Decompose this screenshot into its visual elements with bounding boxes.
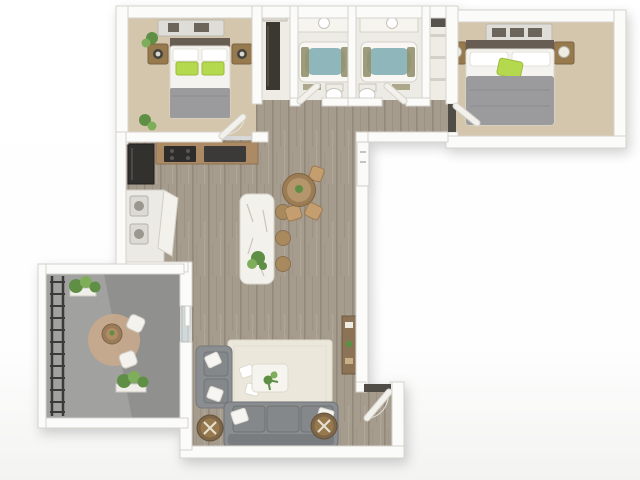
wall-segment	[252, 6, 262, 104]
tub-tray	[363, 47, 371, 77]
kitchen-island	[240, 194, 274, 284]
dresser-drawer	[510, 28, 524, 37]
pillow	[202, 49, 227, 61]
wall-segment	[614, 10, 626, 148]
gray-throw	[170, 88, 230, 118]
wall-segment	[366, 132, 448, 142]
wall-segment	[348, 98, 382, 106]
coffee-table	[252, 364, 288, 392]
wall-segment	[422, 6, 430, 106]
wall-segment	[448, 10, 626, 22]
range-stove	[164, 146, 196, 162]
wall-segment	[392, 382, 404, 456]
bathtub-water	[305, 48, 345, 75]
shelf	[430, 78, 448, 81]
wall-segment	[252, 132, 268, 142]
wall-segment	[116, 6, 450, 18]
floorplan-stage	[0, 0, 640, 480]
utility-panel	[357, 142, 369, 186]
balcony-sliding-door	[182, 306, 190, 342]
drum-side-table	[197, 415, 223, 441]
console-decor	[345, 322, 353, 328]
bathtub-water	[367, 48, 411, 75]
laundry-closet	[126, 190, 178, 262]
wall-segment	[180, 446, 404, 458]
wall-segment	[116, 6, 128, 144]
wall-segment	[290, 6, 298, 106]
wall-segment	[446, 6, 458, 104]
drum-side-table	[311, 413, 337, 439]
tub-tray	[301, 47, 309, 77]
wall-segment	[406, 98, 430, 106]
counter-appliance	[204, 146, 246, 162]
media-console	[342, 316, 356, 374]
wall-segment	[116, 132, 222, 142]
island-top	[240, 194, 274, 284]
dresser-decor	[168, 23, 179, 32]
sink-icon	[319, 18, 330, 29]
accent-pillow	[202, 62, 224, 75]
lamp-icon	[559, 47, 570, 58]
dresser-drawer	[528, 28, 542, 37]
floorplan-render	[0, 0, 640, 480]
queen-bed	[170, 38, 230, 118]
balcony-parapet	[38, 264, 46, 428]
dresser-decor	[194, 23, 209, 32]
dresser-drawer	[492, 28, 506, 37]
bistro-table	[102, 324, 122, 344]
gray-duvet	[466, 76, 554, 125]
console-decor	[345, 358, 353, 364]
shelf	[430, 56, 448, 59]
wall-segment	[446, 136, 626, 148]
sink-icon	[387, 18, 398, 29]
shelf	[430, 34, 448, 37]
console-plant	[346, 341, 353, 348]
balcony-parapet	[38, 418, 188, 428]
accent-pillow	[176, 62, 198, 75]
table-centerpiece	[295, 185, 303, 193]
wall-segment	[116, 132, 126, 272]
queen-bed	[466, 40, 554, 125]
accent-chair	[196, 346, 232, 408]
balcony-parapet	[38, 264, 184, 274]
tub-tray	[407, 47, 415, 77]
dresser	[158, 20, 224, 36]
wall-segment	[180, 342, 192, 450]
bar-stool	[276, 257, 291, 272]
wall-segment	[348, 6, 356, 106]
bar-stool	[276, 231, 291, 246]
pillow	[173, 49, 198, 61]
